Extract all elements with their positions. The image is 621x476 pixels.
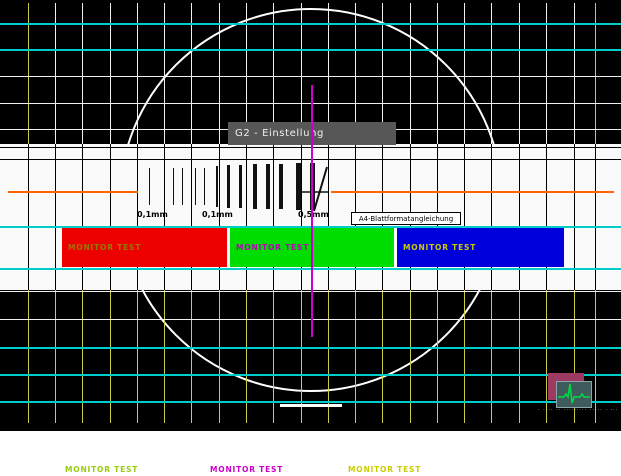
resolution-line [227,165,230,208]
grid-row-bottom [0,347,621,349]
a4-format-label: A4-Blattformatangleichung [359,215,453,223]
bar-label-red: MONITOR TEST [62,243,141,252]
grid-column-bottom [246,290,247,423]
grid-row-top [0,76,621,77]
grid-row-bottom [0,374,621,376]
resolution-label: 0,1mm [137,210,168,219]
center-magenta-line [311,85,313,337]
orange-line-right [331,191,614,193]
grid-column-bottom [273,290,274,423]
resolution-line [204,168,205,205]
grid-column-bottom [410,290,411,423]
resolution-line [195,168,196,205]
grid-column-bottom [595,290,596,423]
grid-column-bottom [28,290,29,423]
resolution-line [266,164,270,209]
grid-column-bottom [82,290,83,423]
logo-front-plate [556,381,592,408]
resolution-line [182,168,183,205]
grid-column-bottom [355,290,356,423]
grid-row-top [0,23,621,25]
resolution-line [253,164,257,209]
grid-column-bottom [491,290,492,423]
bar-label-green: MONITOR TEST [230,243,309,252]
resolution-line [216,166,218,207]
grid-column-bottom [519,290,520,423]
grid-column-bottom [164,290,165,423]
resolution-label: 0,1mm [202,210,233,219]
grid-column-bottom [191,290,192,423]
logo-fine-print: · ···· ·· ········· ····· · ···· ···· [538,407,618,413]
circle-bottom-marker [280,404,342,407]
grid-column-bottom [137,290,138,423]
monitor-test-card: 0,1mm0,1mm0,5mmMONITOR TESTMONITOR TESTM… [0,0,621,476]
bar-label-blue: MONITOR TEST [397,243,476,252]
a4-format-box: A4-Blattformatangleichung [351,212,461,225]
resolution-line [149,168,150,205]
resolution-line [279,164,283,209]
orange-line-left [8,191,138,193]
resolution-line [173,168,174,205]
grid-column-bottom [110,290,111,423]
grid-column-bottom [437,290,438,423]
g2-adjustment-label: G2 - Einstellung [228,128,324,139]
grid-column-bottom [464,290,465,423]
ecg-trace-icon [557,382,591,407]
grid-column-bottom [382,290,383,423]
color-bar-blue: MONITOR TEST [397,228,564,267]
color-bar-red: MONITOR TEST [62,228,227,267]
grid-column-bottom [55,290,56,423]
grid-column-bottom [546,290,547,423]
resolution-line [239,165,242,208]
grid-row-top [0,49,621,51]
grid-row-bottom [0,401,621,403]
grid-column-bottom [219,290,220,423]
